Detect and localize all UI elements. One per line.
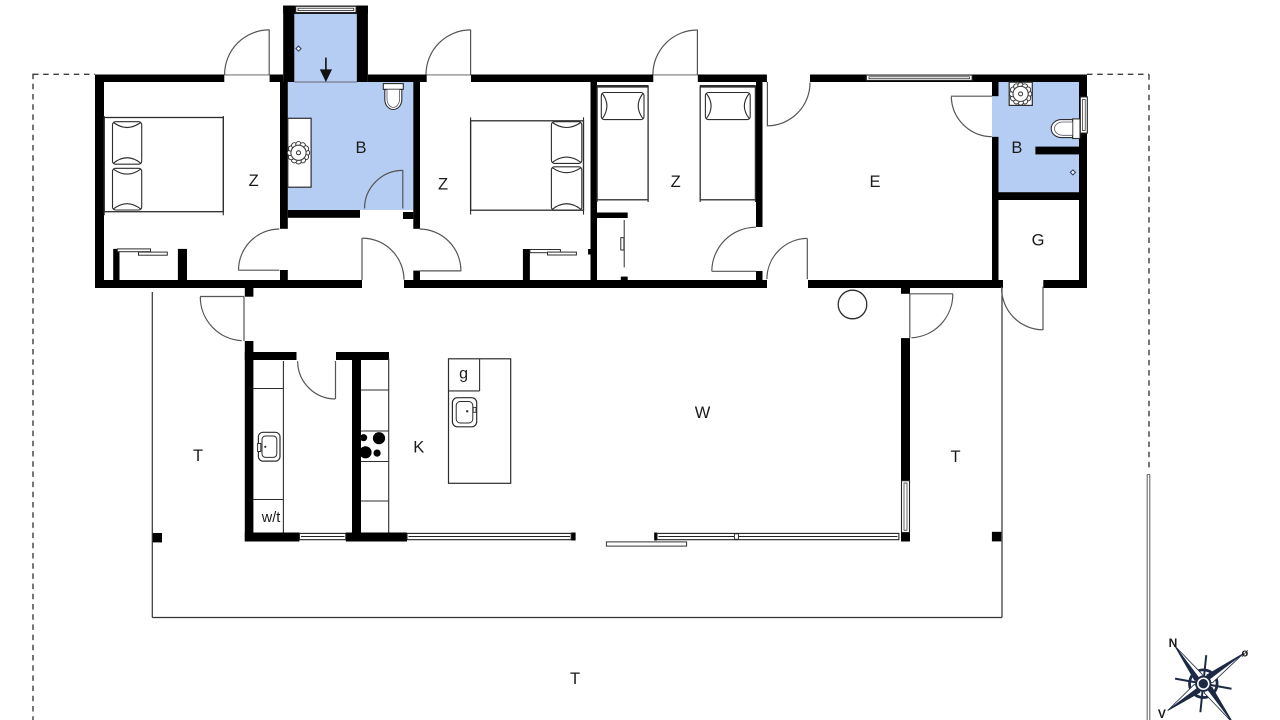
svg-text:Z: Z xyxy=(438,176,448,194)
svg-text:w/t: w/t xyxy=(261,510,281,526)
svg-text:B: B xyxy=(355,139,366,157)
svg-text:ø: ø xyxy=(1242,648,1249,660)
svg-text:E: E xyxy=(869,173,880,191)
svg-text:G: G xyxy=(1032,232,1045,250)
svg-text:Z: Z xyxy=(671,173,681,191)
svg-text:T: T xyxy=(193,447,203,465)
svg-text:Z: Z xyxy=(249,172,259,190)
svg-text:g: g xyxy=(459,366,468,383)
svg-text:N: N xyxy=(1169,636,1178,650)
svg-text:T: T xyxy=(570,670,580,688)
svg-text:W: W xyxy=(695,404,711,422)
svg-text:K: K xyxy=(413,439,424,457)
svg-text:V: V xyxy=(1158,707,1166,720)
svg-text:B: B xyxy=(1011,139,1022,157)
svg-text:T: T xyxy=(950,448,960,466)
